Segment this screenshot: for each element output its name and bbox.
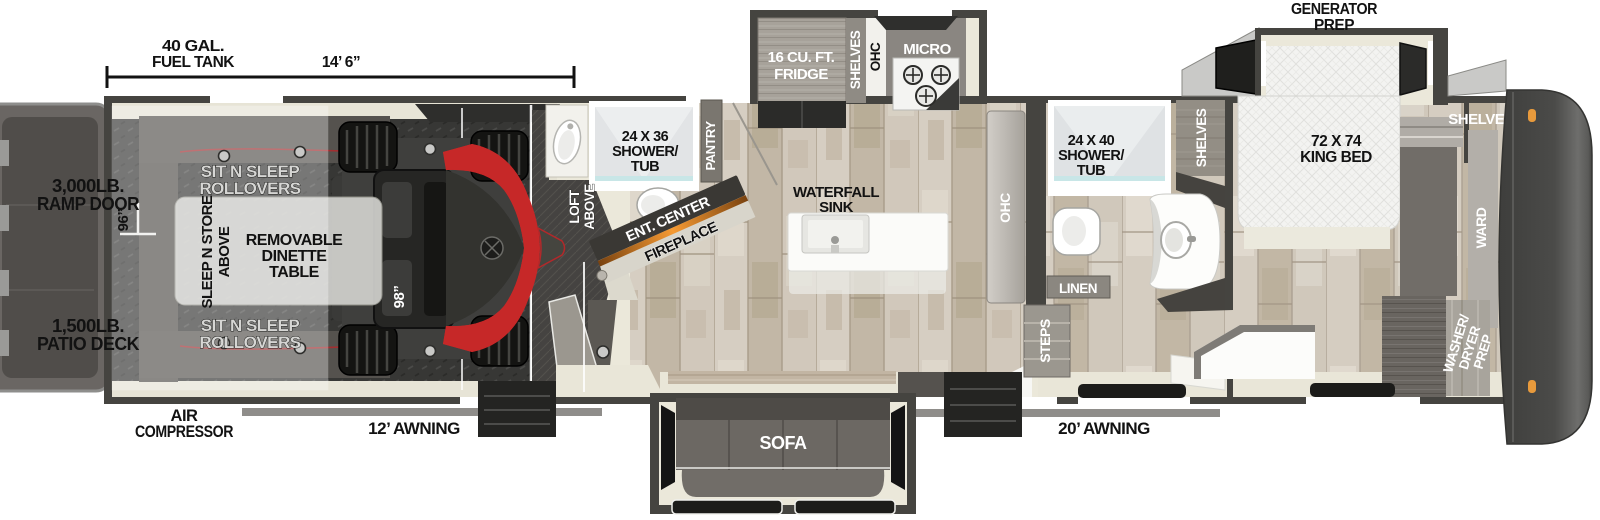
svg-text:SOFA: SOFA [759, 433, 807, 453]
svg-text:SHELVES: SHELVES [848, 30, 863, 89]
svg-text:FRIDGE: FRIDGE [774, 66, 828, 83]
svg-text:40 GAL.: 40 GAL. [162, 38, 224, 55]
svg-text:12’ AWNING: 12’ AWNING [368, 419, 460, 438]
svg-text:ABOVE: ABOVE [216, 226, 233, 277]
svg-text:ROLLOVERS: ROLLOVERS [199, 333, 300, 352]
svg-text:1,500LB.: 1,500LB. [52, 316, 124, 336]
svg-text:ABOVE: ABOVE [582, 184, 597, 230]
svg-text:ROLLOVERS: ROLLOVERS [199, 179, 300, 198]
svg-text:OHC: OHC [868, 42, 883, 71]
svg-text:20’ AWNING: 20’ AWNING [1058, 419, 1150, 438]
svg-text:SINK: SINK [819, 199, 854, 216]
svg-text:WARD: WARD [1473, 207, 1489, 248]
svg-text:KING BED: KING BED [1300, 149, 1372, 166]
svg-text:MICRO: MICRO [903, 41, 951, 58]
svg-text:PANTRY: PANTRY [703, 121, 718, 171]
svg-text:TUB: TUB [1077, 163, 1105, 179]
svg-text:PREP: PREP [1314, 17, 1355, 34]
svg-text:SLEEP N STORE: SLEEP N STORE [199, 195, 216, 308]
svg-text:TUB: TUB [631, 159, 659, 175]
svg-text:RAMP DOOR: RAMP DOOR [37, 194, 139, 214]
svg-text:24 X 40: 24 X 40 [1068, 133, 1115, 149]
svg-text:SHELVES: SHELVES [1194, 108, 1209, 167]
svg-text:SHOWER/: SHOWER/ [612, 144, 678, 160]
svg-text:DINETTE: DINETTE [262, 248, 328, 265]
svg-text:REMOVABLE: REMOVABLE [246, 232, 343, 249]
svg-text:SHOWER/: SHOWER/ [1058, 148, 1124, 164]
svg-text:24 X 36: 24 X 36 [622, 129, 669, 145]
svg-text:LINEN: LINEN [1059, 281, 1097, 296]
svg-text:GENERATOR: GENERATOR [1291, 1, 1378, 18]
svg-text:PATIO DECK: PATIO DECK [37, 334, 139, 354]
svg-text:16 CU. FT.: 16 CU. FT. [768, 49, 835, 66]
svg-text:STEPS: STEPS [1037, 319, 1053, 363]
svg-text:3,000LB.: 3,000LB. [52, 176, 124, 196]
svg-text:TABLE: TABLE [269, 264, 319, 281]
svg-text:98”: 98” [391, 286, 408, 309]
svg-text:COMPRESSOR: COMPRESSOR [135, 422, 233, 441]
svg-text:LOFT: LOFT [567, 189, 582, 223]
svg-text:OHC: OHC [997, 193, 1013, 223]
svg-text:72 X 74: 72 X 74 [1311, 133, 1362, 150]
svg-text:FUEL TANK: FUEL TANK [152, 54, 235, 71]
svg-text:14’ 6”: 14’ 6” [322, 54, 360, 71]
